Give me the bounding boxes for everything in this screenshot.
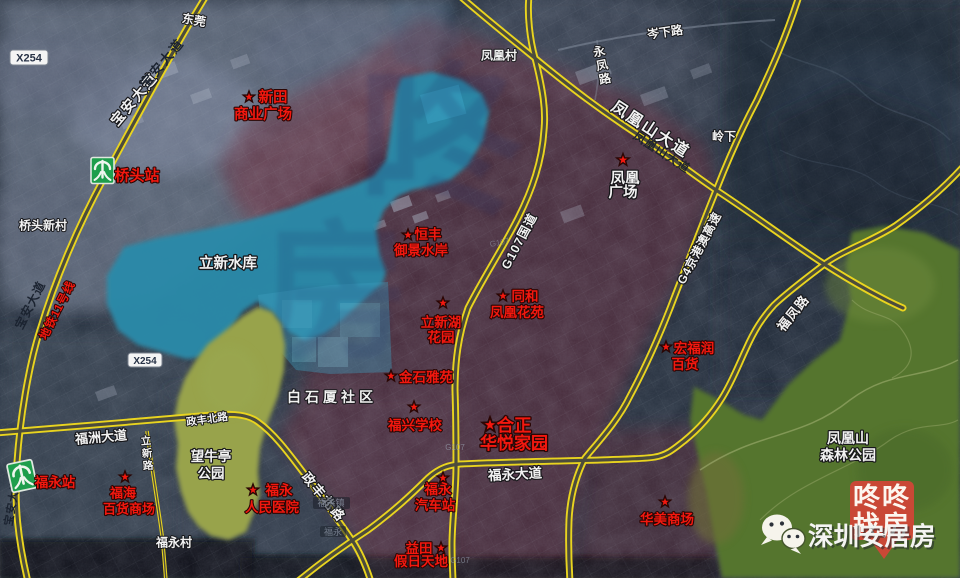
svg-text:福永大道: 福永大道 bbox=[487, 464, 543, 483]
svg-text:桥头站: 桥头站 bbox=[114, 166, 159, 184]
svg-text:望牛亭: 望牛亭 bbox=[191, 448, 232, 464]
svg-text:宏福润: 宏福润 bbox=[674, 340, 715, 356]
svg-text:华美商场: 华美商场 bbox=[640, 511, 694, 527]
svg-text:凤凰花苑: 凤凰花苑 bbox=[490, 304, 544, 320]
svg-text:X254: X254 bbox=[133, 356, 157, 367]
svg-text:立: 立 bbox=[140, 434, 152, 448]
svg-text:广场: 广场 bbox=[609, 183, 638, 201]
svg-text:桥头新村: 桥头新村 bbox=[19, 217, 67, 232]
svg-text:同和: 同和 bbox=[512, 289, 539, 304]
svg-text:福永镇: 福永镇 bbox=[317, 497, 344, 508]
svg-text:路: 路 bbox=[142, 459, 154, 473]
svg-text:立新水库: 立新水库 bbox=[199, 254, 257, 272]
svg-text:商业广场: 商业广场 bbox=[234, 105, 292, 123]
svg-text:岭下: 岭下 bbox=[712, 128, 736, 143]
svg-text:御景水岸: 御景水岸 bbox=[393, 242, 448, 258]
svg-text:凤凰村: 凤凰村 bbox=[481, 47, 517, 62]
svg-text:福永: 福永 bbox=[324, 526, 342, 537]
svg-text:公园: 公园 bbox=[198, 466, 225, 481]
svg-text:白石厦社区: 白石厦社区 bbox=[287, 389, 377, 405]
svg-text:X254: X254 bbox=[16, 53, 43, 65]
svg-text:新田: 新田 bbox=[259, 88, 288, 106]
svg-text:福永站: 福永站 bbox=[34, 474, 76, 490]
svg-text:百货: 百货 bbox=[672, 356, 700, 372]
svg-text:立新湖: 立新湖 bbox=[421, 314, 462, 330]
svg-text:咚: 咚 bbox=[358, 51, 524, 235]
svg-text:新: 新 bbox=[141, 446, 153, 460]
svg-text:合正: 合正 bbox=[497, 415, 532, 435]
svg-text:假日天地: 假日天地 bbox=[394, 553, 448, 569]
svg-text:百货商场: 百货商场 bbox=[103, 502, 155, 517]
svg-text:福永村: 福永村 bbox=[155, 534, 192, 549]
svg-text:福兴学校: 福兴学校 bbox=[387, 417, 442, 433]
svg-text:森林公园: 森林公园 bbox=[820, 447, 876, 463]
svg-text:G107: G107 bbox=[450, 556, 470, 565]
svg-text:恒丰: 恒丰 bbox=[415, 226, 442, 242]
svg-text:金石雅苑: 金石雅苑 bbox=[398, 369, 453, 385]
svg-text:华悦家园: 华悦家园 bbox=[480, 433, 548, 453]
svg-text:福永: 福永 bbox=[424, 481, 452, 497]
svg-text:人民医院: 人民医院 bbox=[245, 499, 299, 515]
svg-text:咚咚: 咚咚 bbox=[853, 482, 911, 513]
svg-text:凤凰山: 凤凰山 bbox=[827, 430, 869, 446]
svg-text:G107: G107 bbox=[445, 443, 465, 452]
svg-text:汽车站: 汽车站 bbox=[415, 497, 456, 513]
svg-text:福永: 福永 bbox=[265, 482, 293, 498]
svg-text:深圳安居房: 深圳安居房 bbox=[808, 522, 936, 551]
svg-text:花园: 花园 bbox=[428, 329, 455, 345]
svg-text:福海: 福海 bbox=[109, 486, 136, 501]
